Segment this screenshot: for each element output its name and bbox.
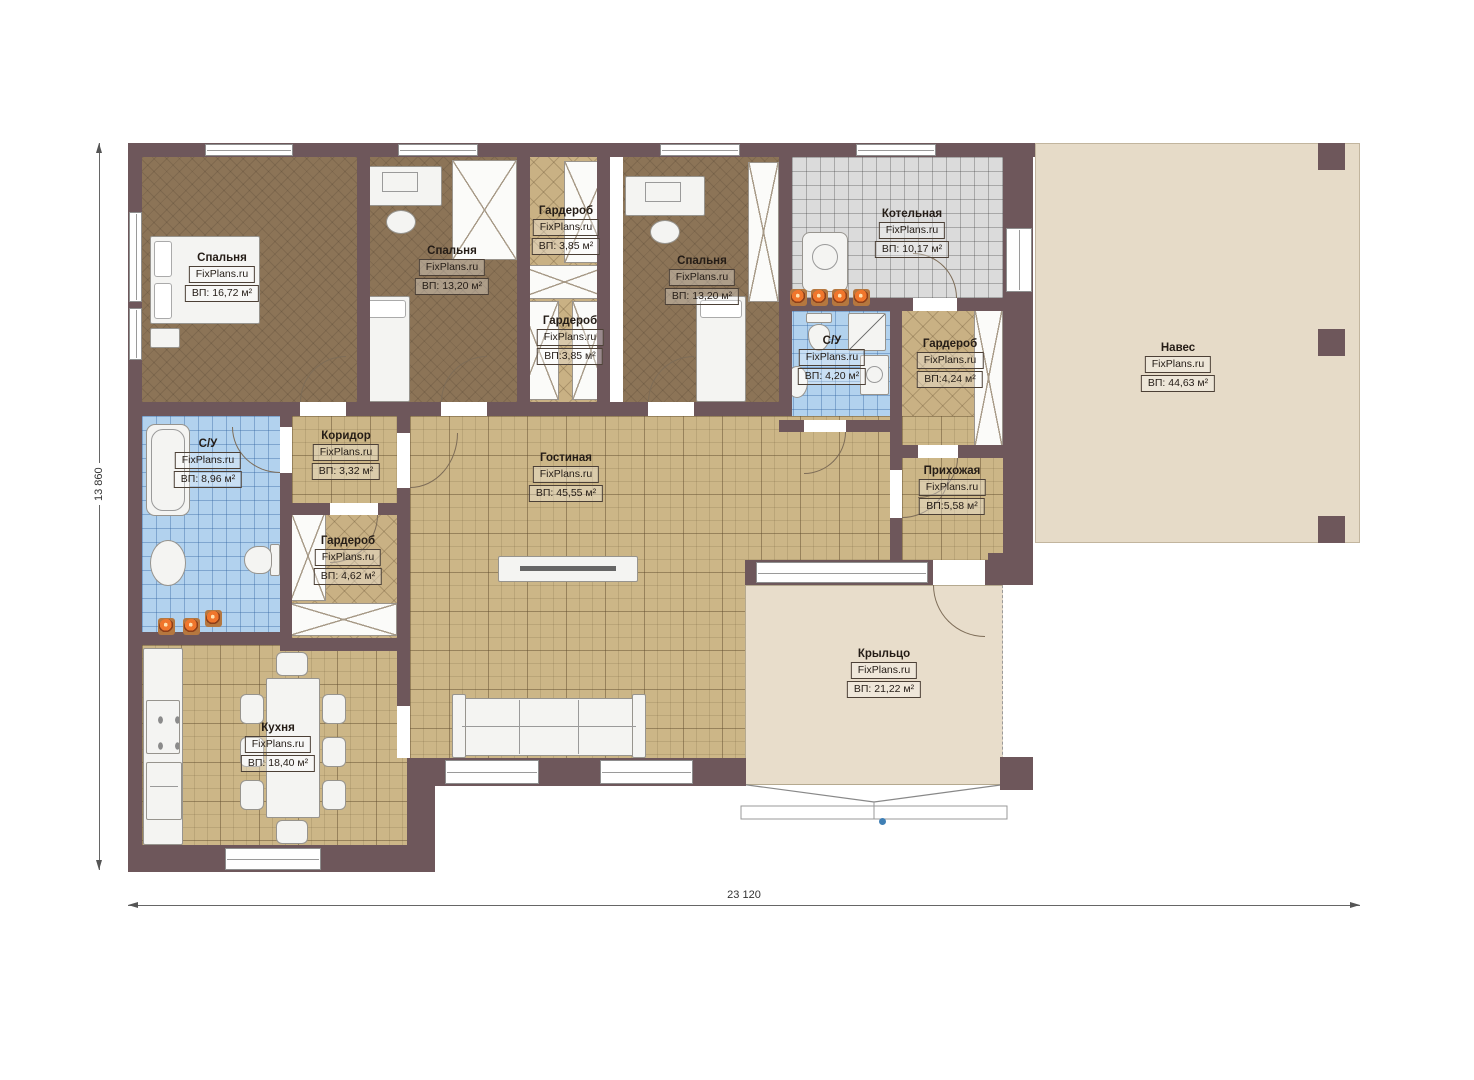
wall-bedroom3-boiler (779, 157, 792, 416)
room-brand: FixPlans.ru (537, 329, 604, 346)
chair (322, 694, 346, 724)
canopy-pillar-bottom (1318, 516, 1345, 543)
room-brand: FixPlans.ru (533, 219, 600, 236)
spotlight-icon (790, 289, 807, 306)
laptop (382, 172, 418, 192)
door-gap-bath-big (280, 427, 292, 473)
arrow-right-icon (1350, 902, 1360, 908)
window (129, 308, 142, 360)
room-name: Котельная (882, 208, 942, 220)
room-label-canopy: Навес FixPlans.ru ВП: 44,63 м² (1141, 342, 1215, 392)
room-area: ВП:4,24 м² (917, 371, 983, 388)
pillow (154, 241, 172, 277)
room-area: ВП: 4,20 м² (798, 368, 866, 385)
door-gap-hallway (890, 470, 902, 518)
room-area: ВП: 44,63 м² (1141, 375, 1215, 392)
chair (322, 780, 346, 810)
laptop (645, 182, 681, 202)
room-name: Спальня (427, 245, 477, 257)
floor-plan-canvas: Спальня FixPlans.ru ВП: 16,72 м² Спальня… (0, 0, 1474, 1080)
door-gap-bedroom-3 (648, 402, 694, 416)
glass-door (756, 562, 928, 583)
room-label-porch: Крыльцо FixPlans.ru ВП: 21,22 м² (847, 648, 921, 698)
window (398, 144, 478, 156)
canopy-pillar-middle (1318, 329, 1345, 356)
room-name: Навес (1161, 342, 1195, 354)
room-label-hallway: Прихожая FixPlans.ru ВП:5,58 м² (919, 465, 986, 515)
window (129, 212, 142, 302)
window (225, 848, 321, 870)
room-label-wardrobe-top: Гардероб FixPlans.ru ВП: 3,85 м² (532, 205, 600, 255)
room-brand: FixPlans.ru (189, 266, 256, 283)
sofa (460, 698, 638, 756)
room-brand: FixPlans.ru (533, 466, 600, 483)
window (600, 760, 693, 784)
room-brand: FixPlans.ru (851, 662, 918, 679)
room-name: Гардероб (543, 315, 597, 327)
room-name: Гардероб (923, 338, 977, 350)
door-gap-bedroom-2 (441, 402, 487, 416)
spotlight-icon (853, 289, 870, 306)
spotlight-icon (183, 618, 200, 635)
room-label-wardrobe-low: Гардероб FixPlans.ru ВП: 4,62 м² (314, 535, 382, 585)
porch-steps (740, 782, 1008, 824)
room-brand: FixPlans.ru (799, 349, 866, 366)
room-label-kitchen: Кухня FixPlans.ru ВП: 18,40 м² (241, 722, 315, 772)
room-area: ВП: 45,55 м² (529, 485, 603, 502)
window (445, 760, 539, 784)
room-area: ВП: 4,62 м² (314, 568, 382, 585)
spotlight-icon (158, 618, 175, 635)
boiler-dial (812, 244, 838, 270)
room-area: ВП: 18,40 м² (241, 755, 315, 772)
room-label-boiler-room: Котельная FixPlans.ru ВП: 10,17 м² (875, 208, 949, 258)
pillow (154, 283, 172, 319)
wall-bath-small-right (890, 311, 902, 416)
opening-kitchen-living (397, 706, 410, 758)
room-brand: FixPlans.ru (917, 352, 984, 369)
window (856, 144, 936, 156)
room-label-wardrobe-right: Гардероб FixPlans.ru ВП:4,24 м² (917, 338, 984, 388)
marker-dot (879, 818, 886, 825)
room-brand: FixPlans.ru (1145, 356, 1212, 373)
room-name: Прихожая (924, 465, 981, 477)
chair (386, 210, 416, 234)
closet-bedroom-3 (748, 162, 779, 302)
sink (150, 540, 186, 586)
room-name: Гардероб (539, 205, 593, 217)
opening-corridor-living (397, 433, 410, 488)
room-label-living-room: Гостиная FixPlans.ru ВП: 45,55 м² (529, 452, 603, 502)
room-name: Спальня (677, 255, 727, 267)
room-area: ВП: 3,85 м² (532, 238, 600, 255)
dimension-width-label: 23 120 (723, 889, 765, 901)
chair (276, 652, 308, 676)
fridge (146, 762, 182, 820)
room-label-bedroom-3: Спальня FixPlans.ru ВП: 13,20 м² (665, 255, 739, 305)
room-name: Спальня (197, 252, 247, 264)
dimension-line-left (99, 143, 100, 870)
room-area: ВП:5,58 м² (919, 498, 985, 515)
room-label-bathroom-big: С/У FixPlans.ru ВП: 8,96 м² (174, 438, 242, 488)
window (205, 144, 293, 156)
canopy-pillar-top (1318, 143, 1345, 170)
arrow-left-icon (128, 902, 138, 908)
window (660, 144, 740, 156)
stove (146, 700, 180, 754)
room-area: ВП: 10,17 м² (875, 241, 949, 258)
room-label-bedroom-2: Спальня FixPlans.ru ВП: 13,20 м² (415, 245, 489, 295)
washer-door (866, 366, 883, 383)
room-area: ВП: 8,96 м² (174, 471, 242, 488)
sofa-seat-line (462, 726, 636, 727)
chair (650, 220, 680, 244)
room-brand: FixPlans.ru (919, 479, 986, 496)
room-brand: FixPlans.ru (879, 222, 946, 239)
wall-kitchen-living (397, 650, 410, 706)
room-area: ВП: 3,32 м² (312, 463, 380, 480)
toilet-tank (806, 313, 832, 323)
dimension-line-bottom (128, 905, 1360, 906)
room-name: Гардероб (321, 535, 375, 547)
room-area: ВП: 13,20 м² (415, 278, 489, 295)
door-gap-wardrobe-low (330, 503, 378, 515)
bench (150, 328, 180, 348)
room-label-bedroom-1: Спальня FixPlans.ru ВП: 16,72 м² (185, 252, 259, 302)
chair (240, 780, 264, 810)
wall-exterior-right (1003, 143, 1033, 557)
room-name: С/У (199, 438, 218, 450)
closet-wardrobe-low-bottom (290, 603, 397, 636)
room-brand: FixPlans.ru (313, 444, 380, 461)
room-name: Кухня (261, 722, 295, 734)
chair (240, 694, 264, 724)
sofa-cushion-line (578, 700, 579, 754)
arrow-up-icon (96, 143, 102, 153)
arrow-down-icon (96, 860, 102, 870)
room-area: ВП: 13,20 м² (665, 288, 739, 305)
chair (322, 737, 346, 767)
room-label-bathroom-small: С/У FixPlans.ru ВП: 4,20 м² (798, 335, 866, 385)
toilet-bowl (244, 546, 272, 574)
room-area: ВП:3,85 м² (537, 348, 603, 365)
wall-wardrobe-low-bottom (280, 638, 410, 651)
door-gap-bedroom-1 (300, 402, 346, 416)
spotlight-icon (205, 610, 222, 627)
room-brand: FixPlans.ru (419, 259, 486, 276)
sofa-cushion-line (519, 700, 520, 754)
porch-pillar (1000, 757, 1033, 790)
room-brand: FixPlans.ru (175, 452, 242, 469)
room-area: ВП: 21,22 м² (847, 681, 921, 698)
wall-wardrobe-bedroom3 (597, 157, 610, 402)
room-brand: FixPlans.ru (245, 736, 312, 753)
room-name: Крыльцо (858, 648, 910, 660)
room-brand: FixPlans.ru (315, 549, 382, 566)
spotlight-icon (832, 289, 849, 306)
room-name: Гостиная (540, 452, 592, 464)
wall-bedroom2-wardrobe (517, 157, 530, 402)
spotlight-icon (811, 289, 828, 306)
room-label-corridor: Коридор FixPlans.ru ВП: 3,32 м² (312, 430, 380, 480)
dimension-height-label: 13 860 (93, 463, 105, 505)
room-label-wardrobe-mid: Гардероб FixPlans.ru ВП:3,85 м² (537, 315, 604, 365)
room-name: С/У (823, 335, 842, 347)
front-door-gap (933, 560, 985, 585)
chair (276, 820, 308, 844)
window (1006, 228, 1032, 292)
tv (520, 566, 616, 571)
room-name: Коридор (321, 430, 371, 442)
pillow (364, 300, 406, 318)
door-gap-wardrobe-right (918, 445, 958, 458)
wall-bedroom1-bedroom2 (357, 157, 370, 402)
door-gap-bath-small (804, 420, 846, 432)
room-brand: FixPlans.ru (669, 269, 736, 286)
room-area: ВП: 16,72 м² (185, 285, 259, 302)
door-gap-boiler (913, 298, 957, 311)
fridge-line (150, 786, 178, 787)
